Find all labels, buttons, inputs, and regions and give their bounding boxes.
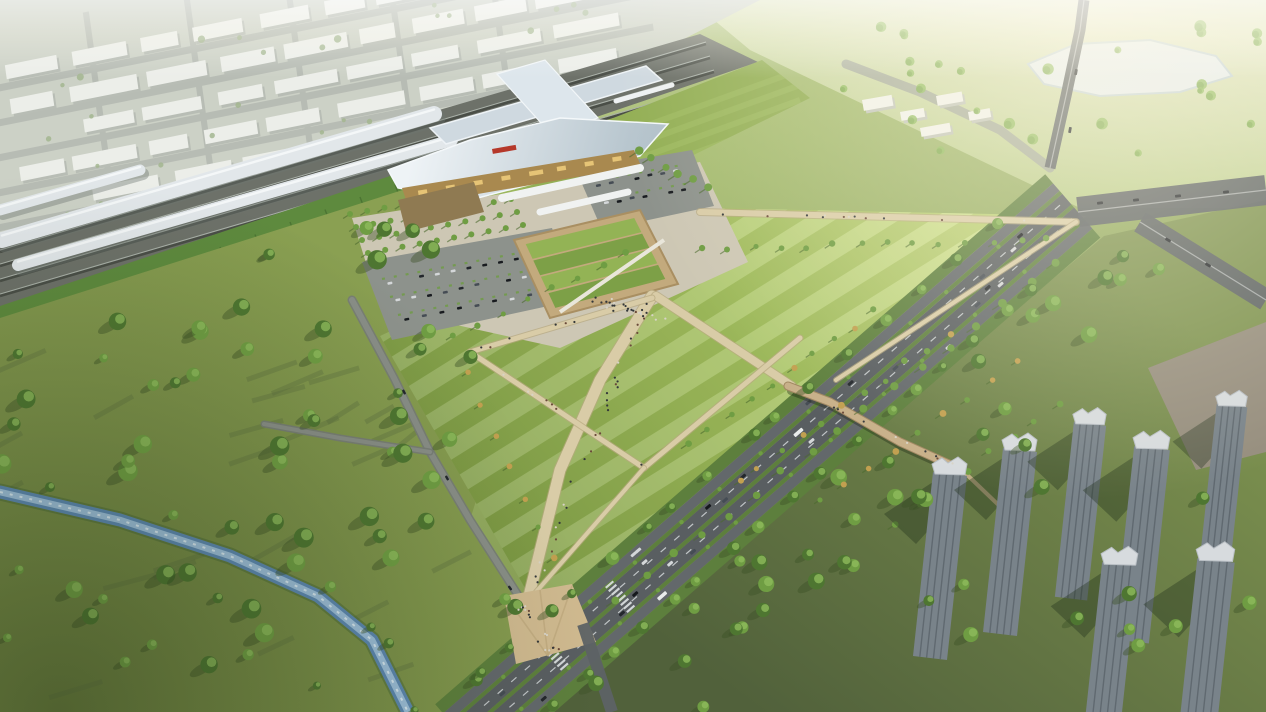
scene-canvas [0, 0, 1266, 712]
corner-vignette [0, 0, 1266, 712]
atmosphere [0, 0, 1266, 712]
aerial-rendering: Aerial architectural rendering: high-spe… [0, 0, 1266, 712]
